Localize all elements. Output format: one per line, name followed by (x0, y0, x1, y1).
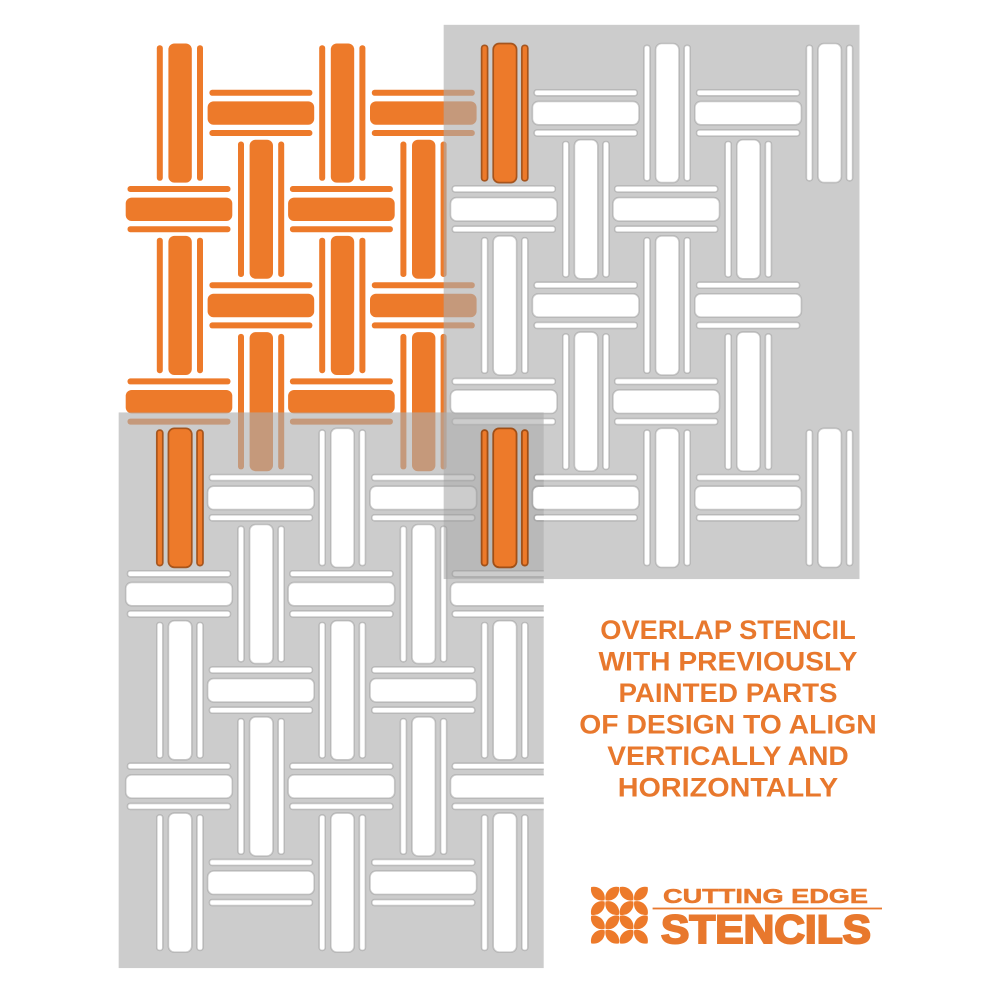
svg-text:VERTICALLY AND: VERTICALLY AND (607, 741, 849, 771)
svg-text:OVERLAP STENCIL: OVERLAP STENCIL (600, 615, 856, 645)
svg-text:OF DESIGN TO ALIGN: OF DESIGN TO ALIGN (579, 710, 877, 740)
svg-text:WITH PREVIOUSLY: WITH PREVIOUSLY (599, 647, 858, 677)
svg-text:CUTTING EDGE: CUTTING EDGE (663, 885, 868, 908)
svg-text:STENCILS: STENCILS (661, 908, 871, 952)
svg-text:HORIZONTALLY: HORIZONTALLY (618, 773, 839, 803)
svg-text:PAINTED PARTS: PAINTED PARTS (619, 678, 838, 708)
